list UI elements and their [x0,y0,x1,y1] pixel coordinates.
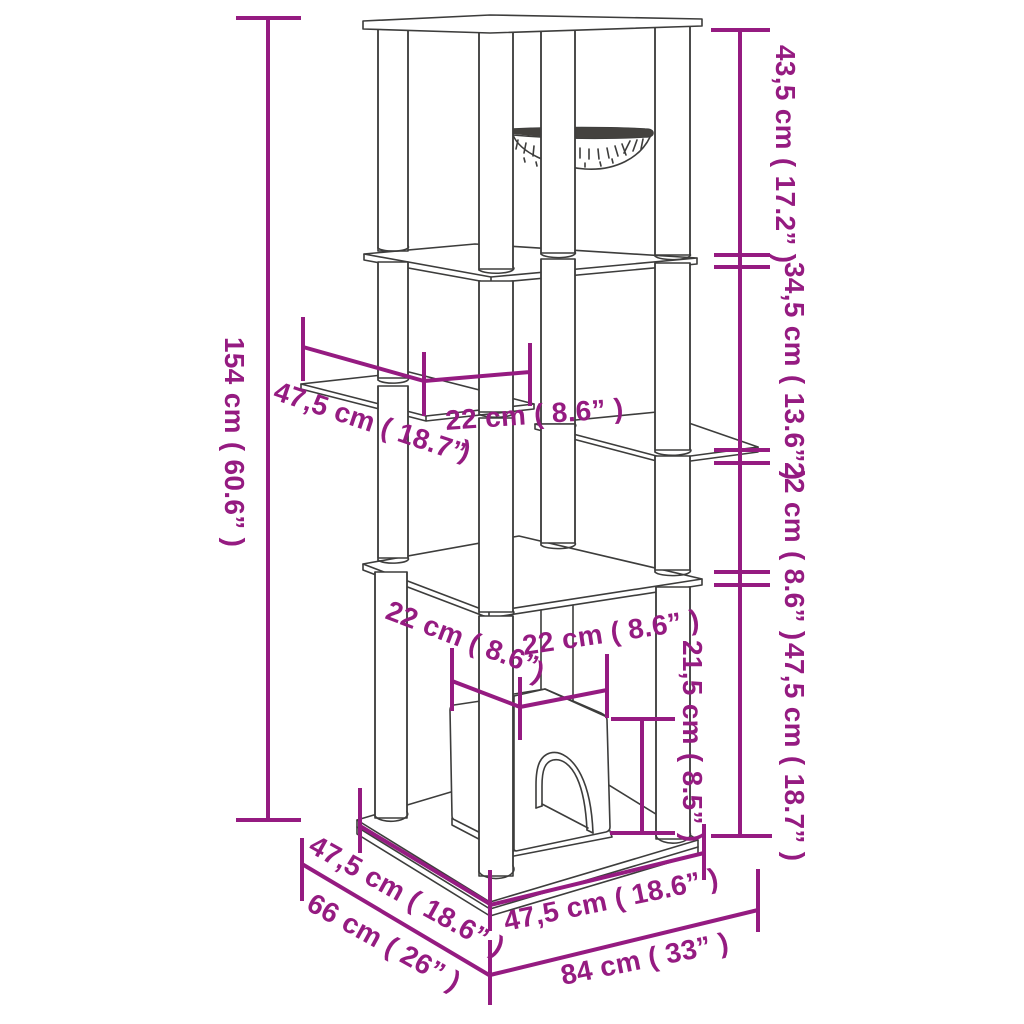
svg-text:154 cm ( 60.6” ): 154 cm ( 60.6” ) [219,337,250,547]
svg-text:22 cm ( 8.6” ): 22 cm ( 8.6” ) [779,462,810,641]
svg-text:47,5 cm ( 18.7” ): 47,5 cm ( 18.7” ) [779,643,810,861]
svg-text:21,5 cm ( 8.5” ): 21,5 cm ( 8.5” ) [677,640,708,842]
svg-text:43,5 cm ( 17.2” ): 43,5 cm ( 17.2” ) [770,45,801,263]
svg-text:34,5 cm ( 13.6” ): 34,5 cm ( 13.6” ) [779,262,810,480]
